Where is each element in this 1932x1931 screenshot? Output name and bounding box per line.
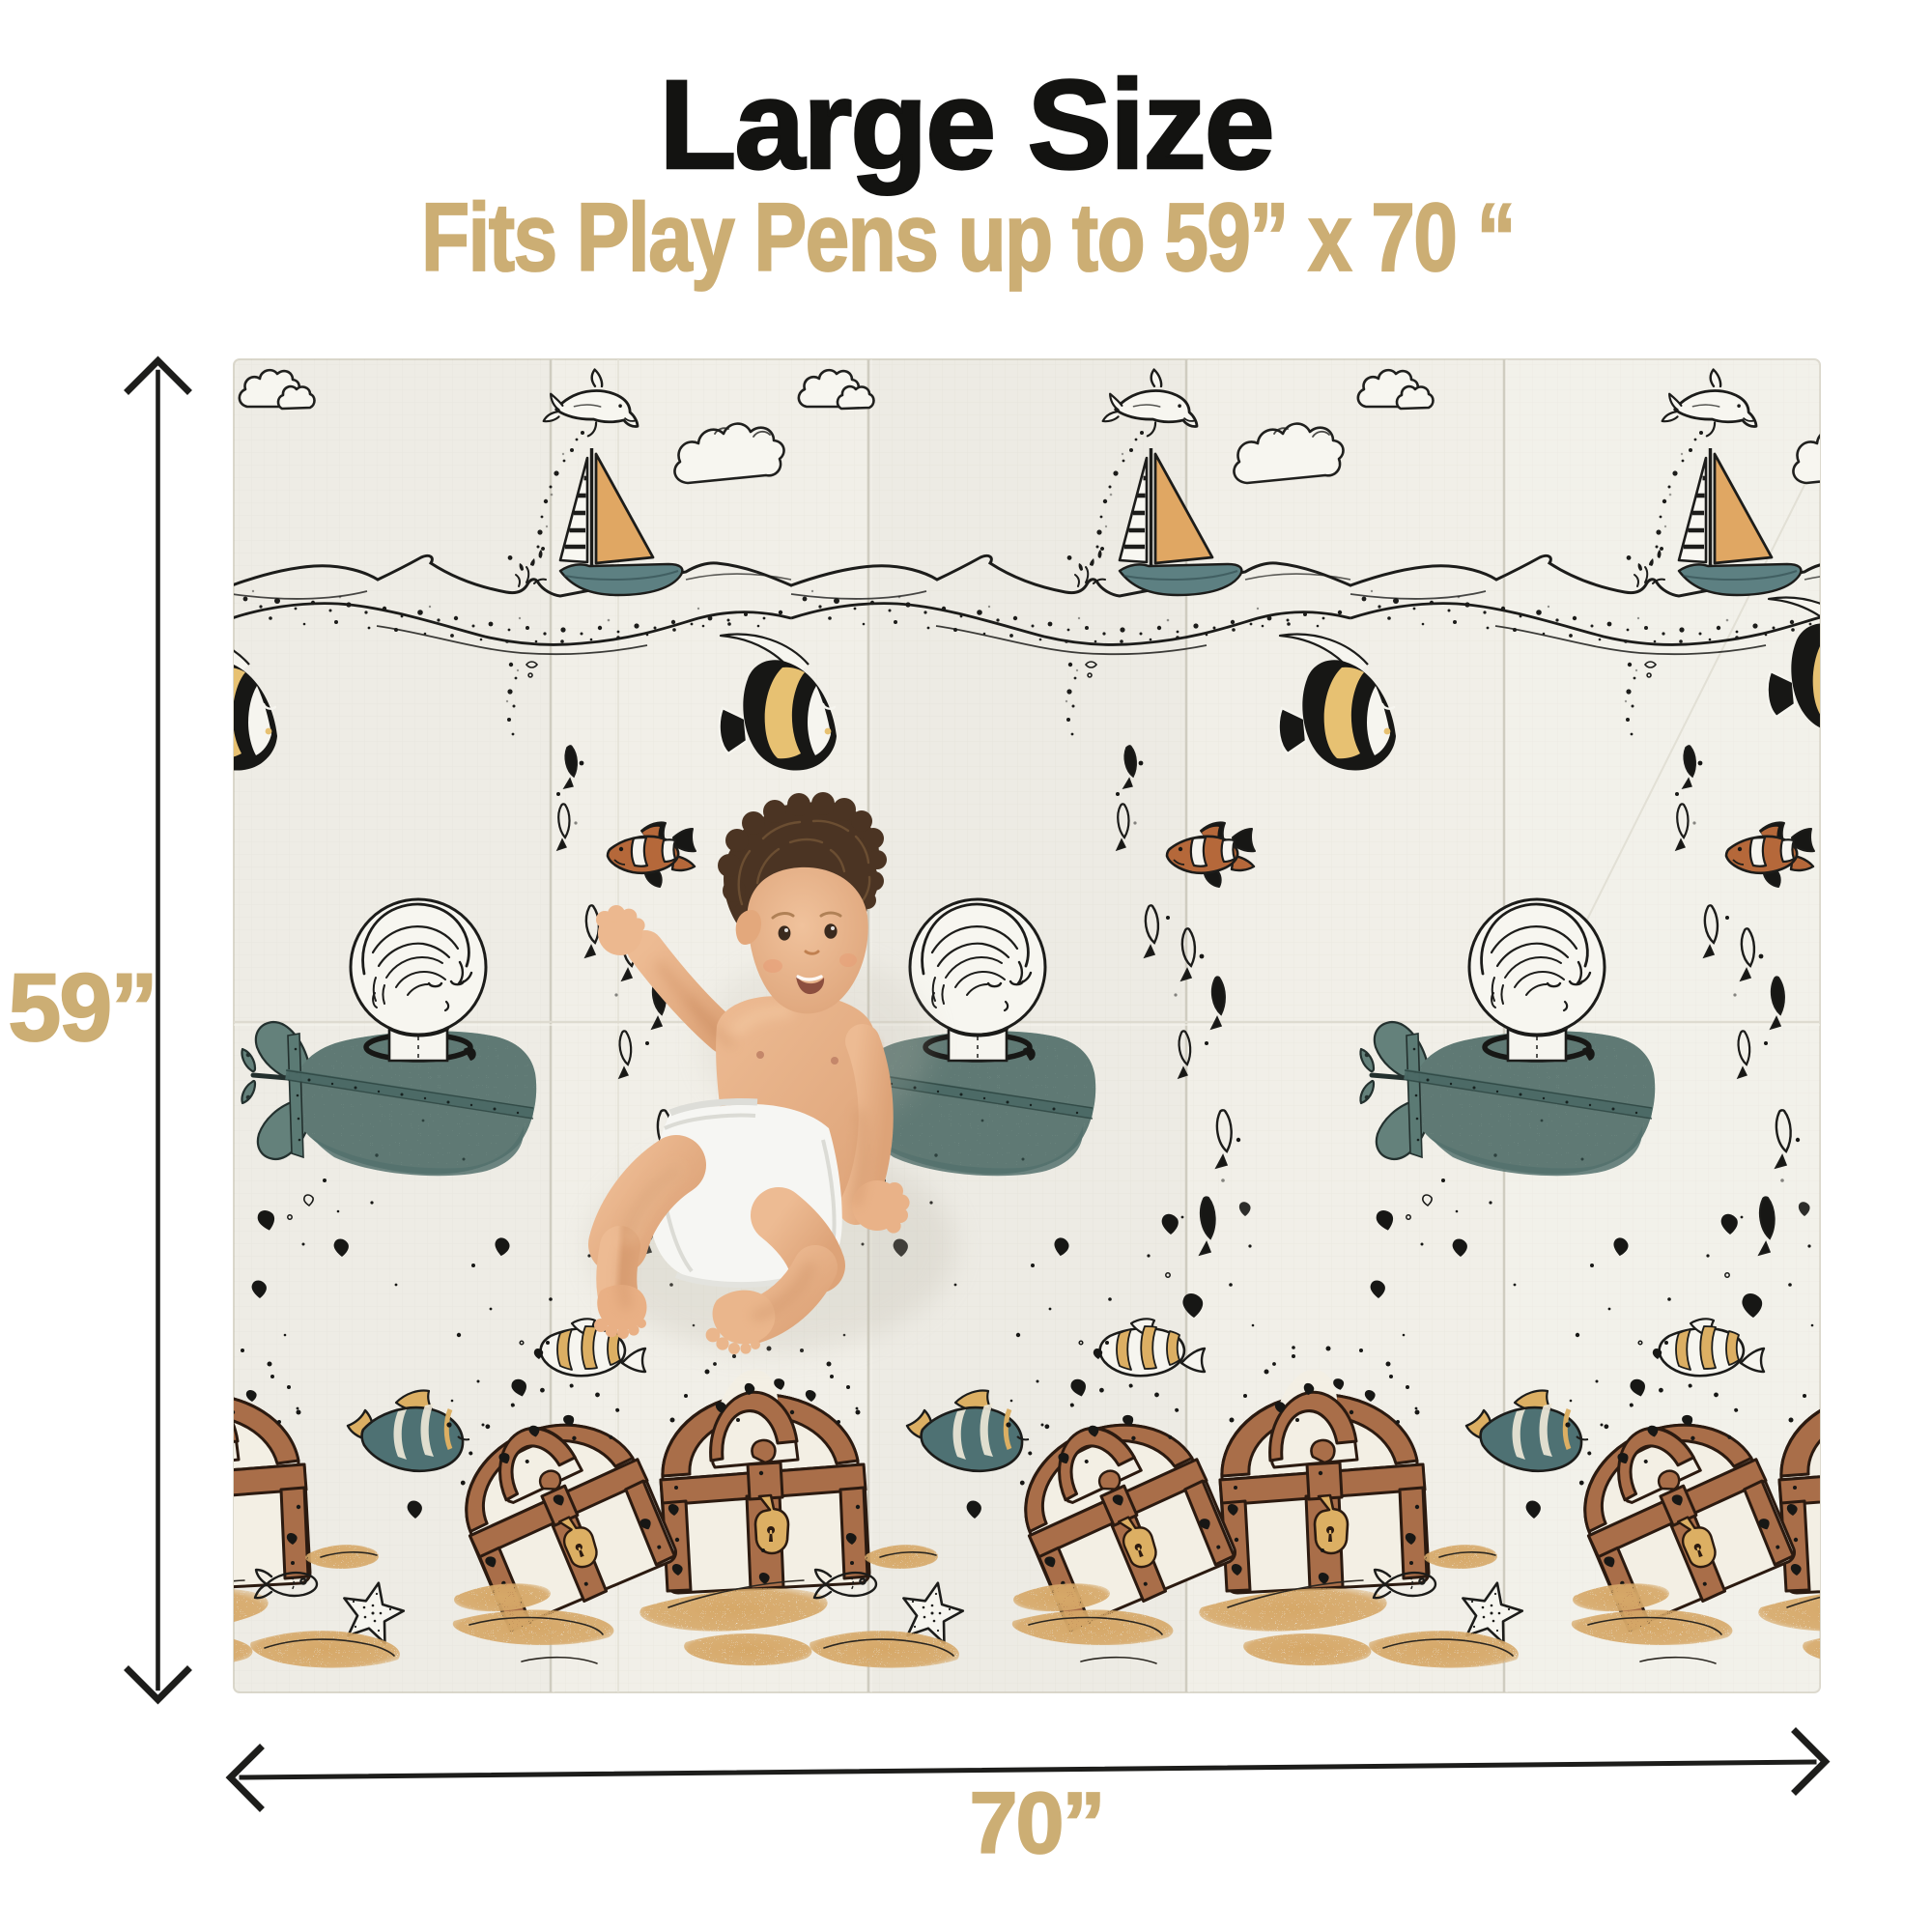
svg-text:Fits Play Pens up to 59” x 70: Fits Play Pens up to 59” x 70 “ bbox=[421, 184, 1515, 292]
svg-text:70”: 70” bbox=[969, 1775, 1103, 1872]
svg-text:59”: 59” bbox=[8, 953, 156, 1061]
svg-text:Large Size: Large Size bbox=[659, 53, 1272, 195]
